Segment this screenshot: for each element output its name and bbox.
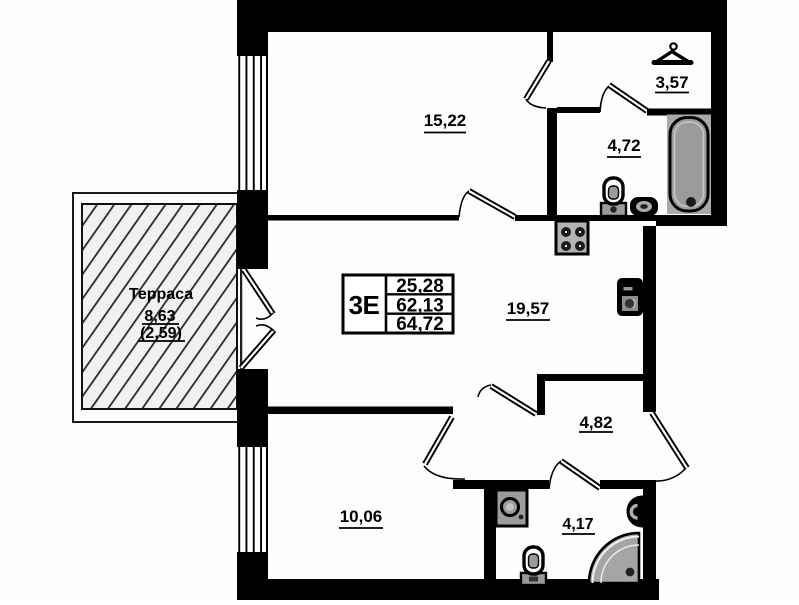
svg-text:19,57: 19,57 bbox=[507, 299, 550, 318]
svg-text:4,72: 4,72 bbox=[607, 136, 640, 155]
svg-text:10,06: 10,06 bbox=[340, 507, 383, 526]
svg-text:(2,59): (2,59) bbox=[140, 325, 182, 342]
svg-text:Терраса: Терраса bbox=[129, 286, 193, 303]
svg-text:64,72: 64,72 bbox=[396, 314, 444, 335]
svg-text:8,63: 8,63 bbox=[144, 308, 175, 325]
svg-text:3,57: 3,57 bbox=[655, 73, 688, 92]
svg-text:25,28: 25,28 bbox=[396, 276, 444, 297]
svg-text:4,17: 4,17 bbox=[562, 516, 593, 533]
svg-text:3Е: 3Е bbox=[349, 290, 380, 320]
svg-text:15,22: 15,22 bbox=[424, 111, 467, 130]
svg-text:4,82: 4,82 bbox=[579, 413, 612, 432]
